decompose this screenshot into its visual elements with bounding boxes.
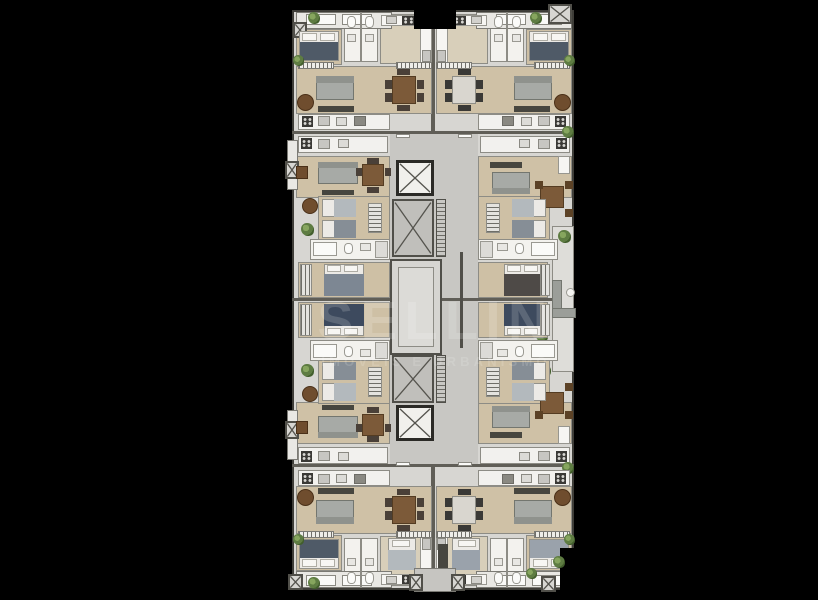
appliance <box>318 451 330 461</box>
bed-pillow <box>533 33 548 41</box>
dining-chair <box>385 93 392 102</box>
plant <box>564 55 575 66</box>
sofa-back <box>492 188 530 194</box>
kitchen-sink <box>338 452 349 461</box>
dining-chair <box>476 80 483 89</box>
sofa-back <box>318 432 358 438</box>
bed-blanket <box>334 383 356 401</box>
unit-divider-wall <box>292 131 574 134</box>
toilet <box>512 16 521 28</box>
kitchen-sink <box>471 16 482 24</box>
shower <box>375 342 388 359</box>
dining-chair <box>397 525 410 531</box>
cooktop <box>302 116 313 127</box>
plant <box>293 534 304 545</box>
sink <box>512 34 521 42</box>
bed-pillow <box>533 559 548 567</box>
bathroom-divider <box>506 12 508 62</box>
bed-blanket <box>300 42 338 60</box>
dining-chair <box>385 498 392 507</box>
corner-brace <box>409 574 423 591</box>
dining-chair <box>417 498 424 507</box>
bed-blanket <box>512 383 534 401</box>
lounge-chair <box>302 198 318 214</box>
dining-chair <box>385 80 392 89</box>
plant <box>558 230 571 243</box>
plant <box>293 55 304 66</box>
bed-blanket <box>512 362 534 380</box>
bathtub <box>313 242 337 256</box>
dining-chair <box>445 511 452 520</box>
appliance <box>538 474 550 484</box>
tv-rack <box>490 162 522 168</box>
kitchen-sink <box>338 139 349 148</box>
kitchen-sink <box>521 117 532 126</box>
bed-pillow <box>344 328 358 335</box>
bed-blanket <box>324 274 364 296</box>
sink <box>347 34 356 42</box>
sink <box>512 558 521 566</box>
dining-chair <box>458 525 471 531</box>
bed-blanket <box>504 274 544 296</box>
plant <box>308 12 320 24</box>
dining-table <box>392 76 416 104</box>
appliance <box>502 474 514 484</box>
dining-chair <box>385 168 391 176</box>
dining-chair <box>565 209 573 217</box>
dining-chair <box>417 511 424 520</box>
sink <box>365 34 374 42</box>
sofa-back <box>514 517 552 524</box>
appliance <box>502 116 514 126</box>
kitchen-sink <box>386 16 397 24</box>
bed-pillow <box>320 33 335 41</box>
dining-chair <box>367 436 379 442</box>
dining-chair <box>397 489 410 495</box>
wardrobe <box>486 367 500 397</box>
bed-pillow <box>327 265 341 272</box>
lounge-chair <box>554 489 571 506</box>
toilet <box>347 16 356 28</box>
fridge <box>558 426 570 444</box>
dining-chair <box>397 105 410 111</box>
dining-chair <box>458 105 471 111</box>
sofa-back <box>316 517 354 524</box>
corridor-wall <box>460 252 463 348</box>
service-shaft-inner <box>398 267 434 347</box>
toilet <box>365 572 374 584</box>
sofa-back <box>492 406 530 412</box>
sink <box>360 349 371 357</box>
wardrobe <box>540 304 550 336</box>
sink <box>494 558 503 566</box>
stair-flight <box>436 355 446 403</box>
bed-blanket <box>530 42 568 60</box>
wardrobe <box>368 203 382 233</box>
sofa-back <box>316 76 354 83</box>
toilet <box>347 572 356 584</box>
unit-door <box>396 134 410 138</box>
cooktop <box>555 116 566 127</box>
bed-blanket <box>388 550 416 570</box>
bathtub <box>531 344 555 358</box>
elevator-shaft <box>396 405 434 441</box>
appliance <box>354 474 366 484</box>
bed-pillow <box>458 540 476 547</box>
side-table <box>566 288 575 297</box>
sliding-door <box>436 62 472 69</box>
dining-chair <box>535 411 543 419</box>
wardrobe <box>540 264 550 296</box>
unit-door <box>458 134 472 138</box>
toilet <box>365 16 374 28</box>
bed-blanket <box>512 220 534 238</box>
bed-blanket <box>334 199 356 217</box>
bed-pillow <box>507 328 521 335</box>
bed-pillow <box>507 265 521 272</box>
cooktop <box>555 473 566 484</box>
shower <box>375 241 388 258</box>
bed-blanket <box>512 199 534 217</box>
cooktop <box>556 138 567 149</box>
plant <box>526 568 537 579</box>
sofa-back <box>514 76 552 83</box>
bathtub <box>313 344 337 358</box>
shower <box>480 342 493 359</box>
corner-brace <box>541 576 556 592</box>
toilet <box>344 243 353 254</box>
kitchen-sink <box>336 474 347 483</box>
bed-blanket <box>324 304 364 326</box>
elevator-shaft <box>396 160 434 196</box>
bathtub <box>531 242 555 256</box>
dining-chair <box>397 69 410 75</box>
counter-item <box>296 421 308 434</box>
unit-door <box>458 462 472 466</box>
dining-table <box>362 414 384 436</box>
cooktop <box>302 473 313 484</box>
bed-blanket <box>504 304 544 326</box>
appliance <box>538 139 550 149</box>
tv-rack <box>322 190 354 195</box>
toilet <box>344 346 353 357</box>
cooktop <box>301 138 312 149</box>
dining-table <box>362 164 384 186</box>
dining-chair <box>385 511 392 520</box>
plant <box>562 126 574 138</box>
dining-chair <box>445 93 452 102</box>
lounge-chair <box>554 94 571 111</box>
bed-pillow <box>302 559 317 567</box>
stair-flight <box>436 199 446 257</box>
plant <box>301 223 314 236</box>
floor-plan <box>0 0 818 600</box>
bed-pillow <box>327 328 341 335</box>
dining-chair <box>367 407 379 413</box>
sofa <box>552 308 576 318</box>
shelf <box>438 544 448 570</box>
sink <box>365 558 374 566</box>
toilet <box>515 243 524 254</box>
dining-chair <box>356 424 362 432</box>
dining-chair <box>565 411 573 419</box>
dining-table <box>452 496 476 524</box>
dining-chair <box>565 383 573 391</box>
lounge-chair <box>302 386 318 402</box>
wardrobe <box>300 264 312 296</box>
bed-pillow <box>524 265 538 272</box>
plant <box>553 556 565 568</box>
sliding-door <box>436 531 472 538</box>
dining-chair <box>458 69 471 75</box>
tv-rack <box>514 488 550 494</box>
unit-door <box>396 462 410 466</box>
plant <box>564 534 575 545</box>
dining-chair <box>565 181 573 189</box>
dining-chair <box>445 80 452 89</box>
wardrobe <box>368 367 382 397</box>
fridge <box>558 156 570 174</box>
sink <box>497 349 508 357</box>
bed-pillow <box>524 328 538 335</box>
lounge-chair <box>297 489 314 506</box>
fridge <box>422 50 431 62</box>
dining-chair <box>417 93 424 102</box>
bed-blanket <box>300 540 338 558</box>
tv-rack <box>318 488 354 494</box>
kitchen-sink <box>386 576 397 584</box>
counter-item <box>296 166 308 179</box>
floor-plan-render: SELLIN IMÓVEIS E URBANISMO <box>0 0 818 600</box>
plant <box>530 12 542 24</box>
dining-table <box>392 496 416 524</box>
tv-rack <box>490 432 522 438</box>
corner-brace <box>451 574 465 591</box>
bed-blanket <box>334 362 356 380</box>
plant <box>301 364 314 377</box>
tv-rack <box>318 106 354 112</box>
dining-chair <box>356 168 362 176</box>
appliance <box>538 451 550 461</box>
bed-pillow <box>320 559 335 567</box>
kitchen-sink <box>471 576 482 584</box>
lounge-chair <box>297 94 314 111</box>
cooktop <box>301 451 312 462</box>
dining-chair <box>367 158 379 164</box>
sink <box>497 243 508 251</box>
bathroom-divider <box>360 12 362 62</box>
dining-chair <box>458 489 471 495</box>
dining-chair <box>476 511 483 520</box>
corner-brace <box>288 574 303 590</box>
kitchen-sink <box>519 452 530 461</box>
roof-brace <box>548 4 572 24</box>
toilet <box>515 346 524 357</box>
stairwell <box>392 355 434 403</box>
bed-blanket <box>452 550 480 570</box>
toilet <box>494 572 503 584</box>
sink <box>360 243 371 251</box>
facade-notch <box>414 10 456 29</box>
plant <box>308 577 320 589</box>
toilet <box>494 16 503 28</box>
bed-blanket <box>334 220 356 238</box>
shower <box>480 241 493 258</box>
wardrobe <box>486 203 500 233</box>
dining-table <box>452 76 476 104</box>
bed-pillow <box>302 33 317 41</box>
sink <box>494 34 503 42</box>
dining-chair <box>417 80 424 89</box>
bathroom-divider <box>360 538 362 588</box>
appliance <box>538 116 550 126</box>
fridge <box>422 538 431 550</box>
appliance <box>318 139 330 149</box>
appliance <box>318 474 330 484</box>
kitchen-sink <box>519 139 530 148</box>
bed-pillow <box>344 265 358 272</box>
appliance <box>354 116 366 126</box>
dining-chair <box>535 181 543 189</box>
kitchen-sink <box>521 474 532 483</box>
bed-pillow <box>392 540 410 547</box>
dining-chair <box>476 93 483 102</box>
wardrobe <box>300 304 312 336</box>
bed-pillow <box>551 33 566 41</box>
sink <box>347 558 356 566</box>
sliding-door <box>396 531 432 538</box>
sliding-door <box>396 62 432 69</box>
kitchen-sink <box>336 117 347 126</box>
cooktop <box>556 451 567 462</box>
stairwell <box>392 199 434 257</box>
dining-chair <box>367 187 379 193</box>
dining-chair <box>476 498 483 507</box>
dining-chair <box>385 424 391 432</box>
fridge <box>437 50 446 62</box>
appliance <box>318 116 330 126</box>
tv-rack <box>322 405 354 410</box>
facade-notch <box>560 548 576 590</box>
sofa-back <box>318 162 358 168</box>
dining-chair <box>445 498 452 507</box>
tv-rack <box>514 106 550 112</box>
bathroom-divider <box>506 538 508 588</box>
toilet <box>512 572 521 584</box>
